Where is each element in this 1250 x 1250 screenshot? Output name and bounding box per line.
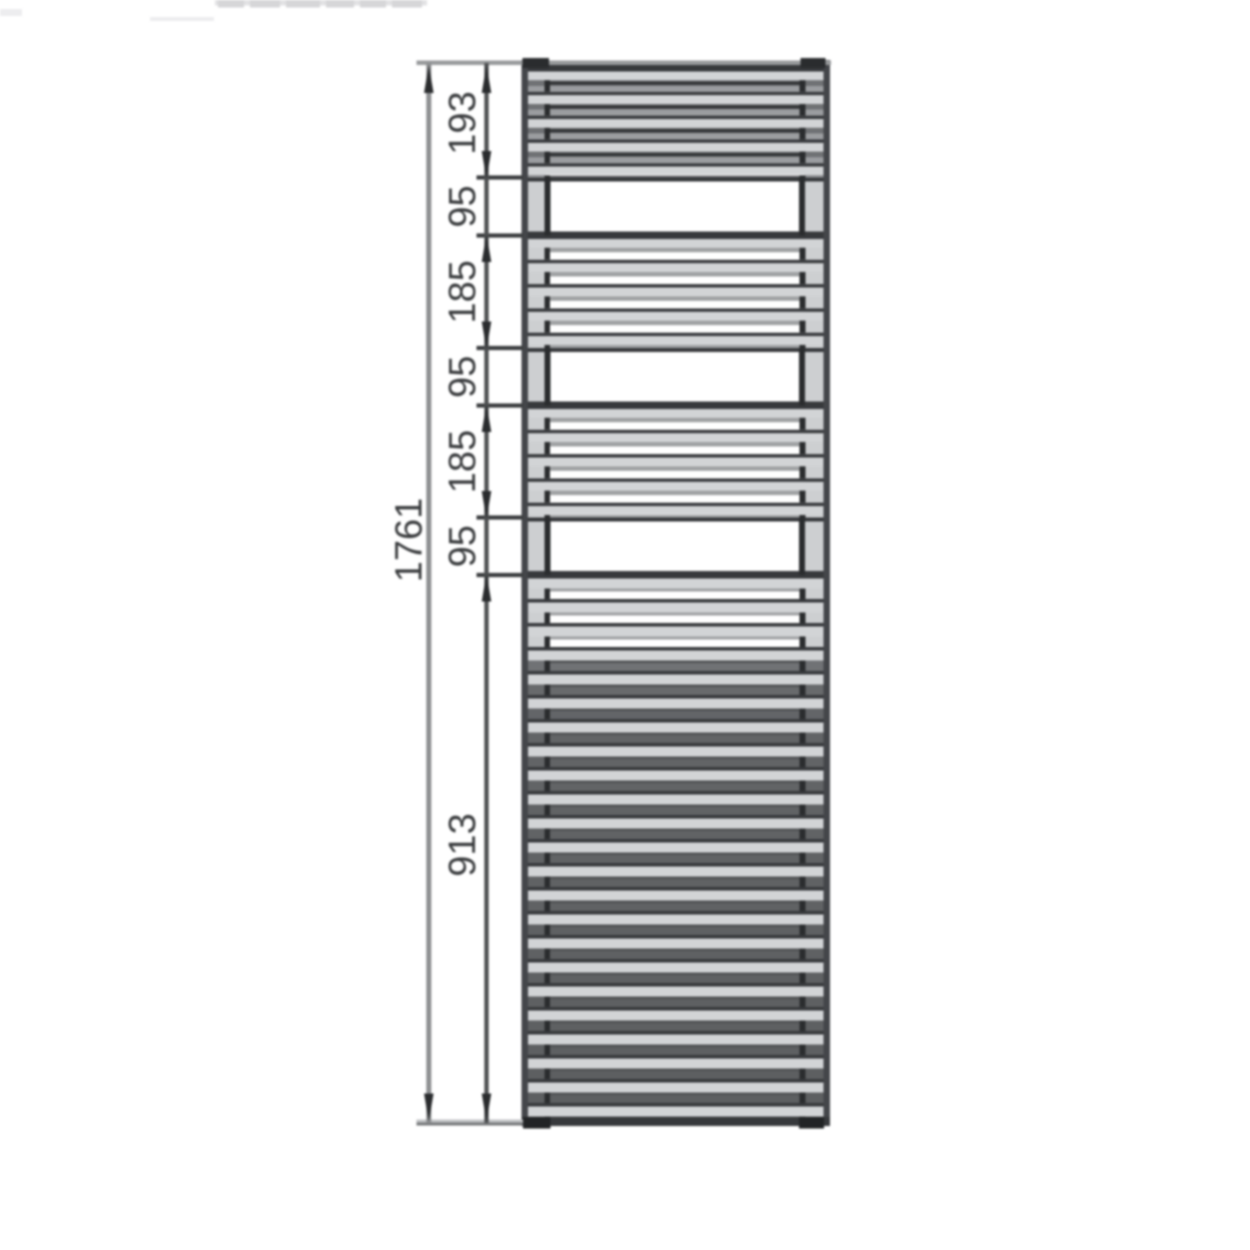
svg-text:95: 95 (442, 525, 484, 567)
svg-text:185: 185 (442, 260, 484, 323)
svg-text:185: 185 (442, 430, 484, 493)
svg-text:95: 95 (442, 185, 484, 227)
svg-text:1761: 1761 (389, 498, 431, 583)
svg-text:193: 193 (442, 91, 484, 154)
svg-text:913: 913 (442, 813, 484, 876)
svg-text:95: 95 (442, 356, 484, 398)
